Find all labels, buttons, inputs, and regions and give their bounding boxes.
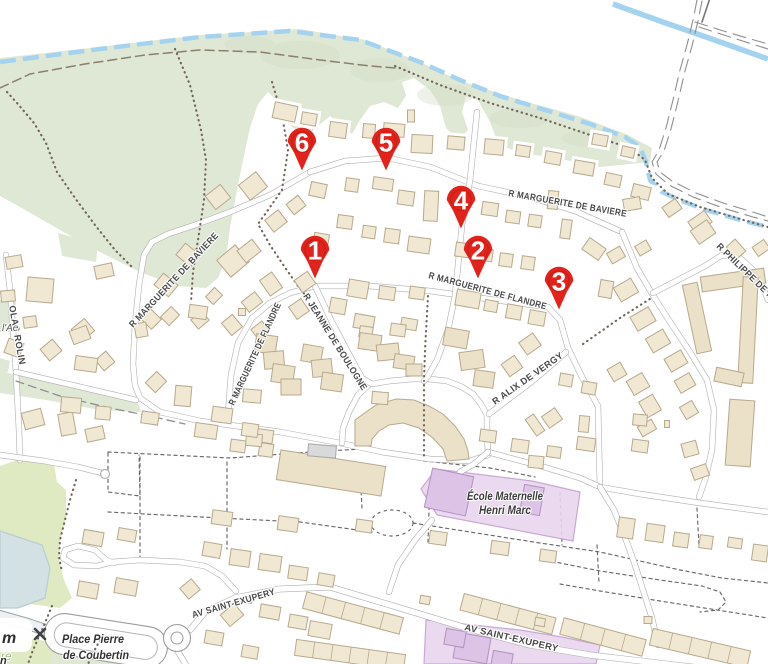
svg-text:4: 4 <box>454 185 469 215</box>
svg-text:n: n <box>0 655 7 664</box>
svg-text:l'Ae: l'Ae <box>2 323 19 334</box>
svg-text:École Maternelle: École Maternelle <box>467 488 543 503</box>
svg-text:2: 2 <box>471 235 485 265</box>
svg-text:Place Pierre: Place Pierre <box>62 632 124 646</box>
svg-text:1: 1 <box>308 235 322 265</box>
svg-text:de Coubertin: de Coubertin <box>63 648 129 662</box>
svg-text:3: 3 <box>552 266 566 296</box>
svg-text:6: 6 <box>295 127 309 157</box>
svg-text:5: 5 <box>379 127 393 157</box>
svg-text:Henri Marc: Henri Marc <box>479 503 531 517</box>
svg-text:m: m <box>2 630 16 647</box>
